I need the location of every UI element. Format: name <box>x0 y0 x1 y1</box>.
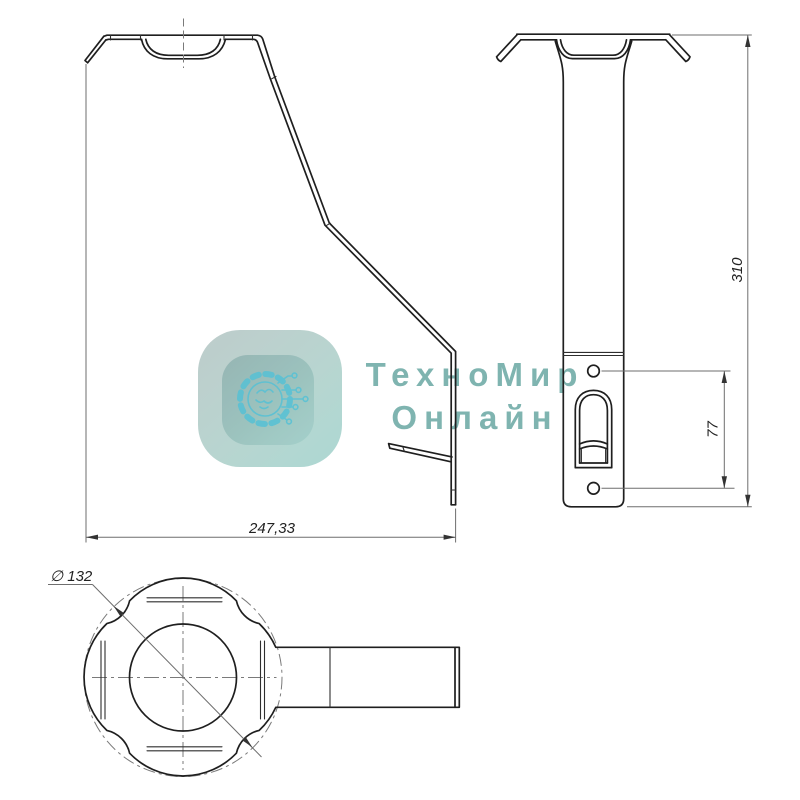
front-stem-joint-lines <box>563 352 623 355</box>
arrowhead-bottom <box>722 476 727 488</box>
front-slot-inner <box>580 395 608 463</box>
front-top-plate <box>517 34 670 40</box>
front-left-wing <box>497 35 521 62</box>
front-slot-bottom <box>575 463 611 468</box>
dim-side-width-label: 247,33 <box>248 520 296 537</box>
side-inner-profile <box>106 39 451 505</box>
extension-lines <box>86 64 456 543</box>
knob-and-tab-outline <box>84 578 459 776</box>
dimension-diameter: ∅ 132 <box>48 568 262 757</box>
dim-hole-spacing-label: 77 <box>705 421 722 438</box>
arrowhead-left <box>86 535 98 540</box>
bottom-view <box>84 578 459 776</box>
drawing-canvas: ТехноМир Онлайн 247,33 <box>0 0 800 800</box>
side-tab-outline <box>389 444 452 462</box>
arrowhead-right <box>444 535 456 540</box>
dim-front-height-label: 310 <box>729 257 746 283</box>
dimension-hole-spacing: 77 <box>602 371 735 488</box>
dimension-front-height: 310 <box>627 35 752 507</box>
side-wing-outline <box>85 36 106 63</box>
side-bend-ticks <box>111 35 456 490</box>
bracket-drawing: 247,33 310 <box>0 0 800 800</box>
arrowhead-top <box>722 371 727 383</box>
front-upper-hole <box>588 365 600 377</box>
front-slot-tab-band <box>580 441 608 449</box>
front-view <box>497 34 690 507</box>
side-tab-bend-tick <box>403 447 404 450</box>
dim-diameter-label: ∅ 132 <box>50 568 93 585</box>
arrowhead-top <box>745 35 750 47</box>
front-stem-outline <box>555 41 631 507</box>
side-view <box>85 19 456 505</box>
dimension-side-width: 247,33 <box>86 64 456 543</box>
front-lower-hole <box>588 483 600 495</box>
front-dish-inner <box>561 40 627 55</box>
front-slot-tab-sides <box>581 450 605 464</box>
arrowhead-bottom <box>745 495 750 507</box>
front-right-wing <box>666 35 690 62</box>
leader-and-dim-line <box>48 585 262 758</box>
